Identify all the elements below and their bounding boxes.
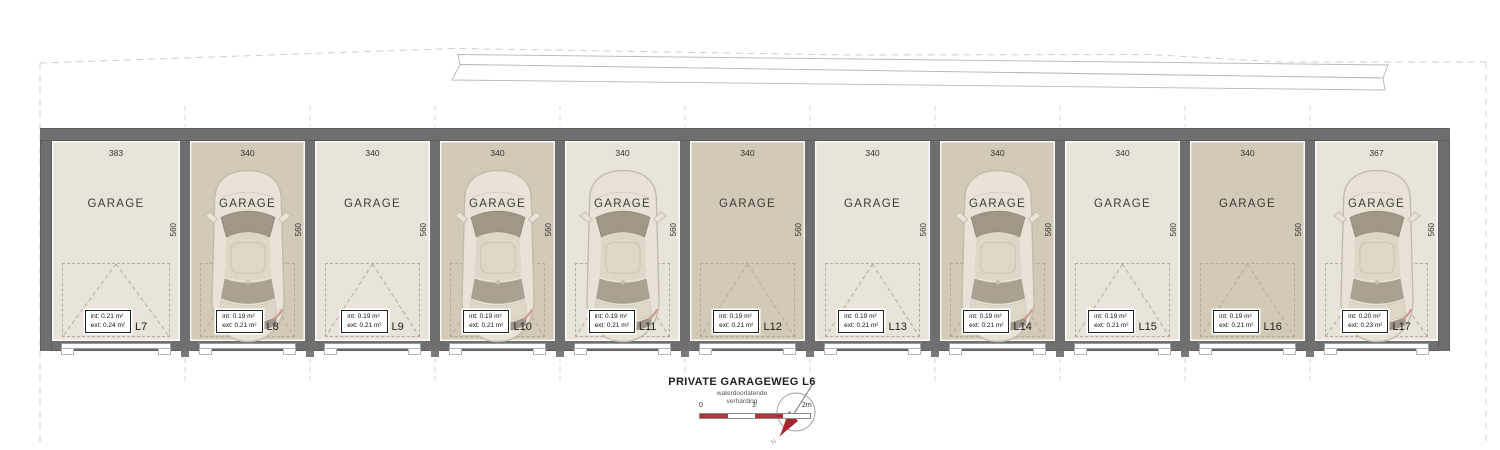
area-ext: ext: 0.21 m²	[969, 322, 1003, 331]
area-ext: ext: 0.21 m²	[1219, 322, 1253, 331]
garage-door	[324, 343, 421, 349]
area-int: int: 0.19 m²	[595, 313, 629, 322]
depth-dimension: 560	[1427, 223, 1436, 236]
area-int: int: 0.19 m²	[222, 313, 256, 322]
depth-dimension: 560	[669, 223, 678, 236]
door-sill-left	[449, 348, 462, 355]
garage-floor: 340 GARAGE 560 int: 0.19 m² ext: 0.21 m²…	[440, 141, 555, 341]
garage-floor: 340 GARAGE 560 int: 0.19 m² ext: 0.21 m²…	[815, 141, 930, 341]
garage-door	[61, 343, 171, 349]
garage-unit: 340 GARAGE 560 int: 0.19 m² ext: 0.21 m²…	[440, 141, 555, 351]
width-dimension: 340	[440, 148, 555, 158]
unit-id-label: L9	[392, 322, 404, 333]
depth-dimension: 560	[419, 223, 428, 236]
door-sill-left	[824, 348, 837, 355]
garage-floor: 367 GARAGE 560 int: 0.20 m² ext: 0.23 m²…	[1315, 141, 1438, 341]
garage-room-label: GARAGE	[690, 198, 805, 210]
width-dimension: 340	[565, 148, 680, 158]
garage-door	[699, 343, 796, 349]
area-int: int: 0.19 m²	[844, 313, 878, 322]
end-wall-left	[40, 141, 52, 351]
party-wall	[680, 141, 690, 351]
door-sill-left	[1324, 348, 1337, 355]
front-wall	[690, 341, 805, 351]
unit-id-label: L15	[1138, 322, 1156, 333]
party-wall	[1180, 141, 1190, 351]
width-dimension: 340	[690, 148, 805, 158]
garage-floor: 340 GARAGE 560 int: 0.19 m² ext: 0.21 m²…	[690, 141, 805, 341]
depth-dimension: 560	[919, 223, 928, 236]
area-info-box: int: 0.19 m² ext: 0.21 m²	[1213, 310, 1259, 333]
area-int: int: 0.19 m²	[969, 313, 1003, 322]
width-dimension: 340	[815, 148, 930, 158]
area-ext: ext: 0.21 m²	[469, 322, 503, 331]
width-dimension: 367	[1315, 148, 1438, 158]
garage-room-label: GARAGE	[940, 198, 1055, 210]
area-ext: ext: 0.23 m²	[1348, 322, 1382, 331]
garage-unit: 340 GARAGE 560 int: 0.19 m² ext: 0.21 m²…	[190, 141, 305, 351]
end-wall-right	[1438, 141, 1450, 351]
garage-unit: 340 GARAGE 560 int: 0.19 m² ext: 0.21 m²…	[940, 141, 1055, 351]
garage-unit: 340 GARAGE 560 int: 0.19 m² ext: 0.21 m²…	[1065, 141, 1180, 351]
area-info-box: int: 0.20 m² ext: 0.23 m²	[1342, 310, 1388, 333]
party-wall	[930, 141, 940, 351]
area-ext: ext: 0.24 m²	[91, 322, 125, 331]
door-sill-right	[158, 348, 171, 355]
garage-unit: 340 GARAGE 560 int: 0.19 m² ext: 0.21 m²…	[315, 141, 430, 351]
area-info-box: int: 0.19 m² ext: 0.21 m²	[341, 310, 387, 333]
front-wall	[1065, 341, 1180, 351]
door-sill-right	[783, 348, 796, 355]
depth-dimension: 560	[794, 223, 803, 236]
party-wall	[555, 141, 565, 351]
party-wall	[305, 141, 315, 351]
garage-floor: 340 GARAGE 560 int: 0.19 m² ext: 0.21 m²…	[565, 141, 680, 341]
garage-floor: 340 GARAGE 560 int: 0.19 m² ext: 0.21 m²…	[940, 141, 1055, 341]
garage-unit: 340 GARAGE 560 int: 0.19 m² ext: 0.21 m²…	[815, 141, 930, 351]
garage-door	[824, 343, 921, 349]
area-info-box: int: 0.21 m² ext: 0.24 m²	[85, 310, 131, 333]
area-ext: ext: 0.21 m²	[222, 322, 256, 331]
garage-room-label: GARAGE	[440, 198, 555, 210]
area-int: int: 0.19 m²	[1094, 313, 1128, 322]
unit-id-label: L13	[888, 322, 906, 333]
area-int: int: 0.21 m²	[91, 313, 125, 322]
front-wall	[1190, 341, 1305, 351]
door-sill-right	[1158, 348, 1171, 355]
door-sill-left	[199, 348, 212, 355]
door-sill-right	[408, 348, 421, 355]
depth-dimension: 560	[1294, 223, 1303, 236]
unit-id-label: L17	[1392, 322, 1410, 333]
garage-floor: 340 GARAGE 560 int: 0.19 m² ext: 0.21 m²…	[315, 141, 430, 341]
door-sill-right	[1033, 348, 1046, 355]
door-sill-left	[1199, 348, 1212, 355]
garage-door	[1199, 343, 1296, 349]
scale-label-2: 2m	[802, 402, 812, 409]
front-wall	[52, 341, 180, 351]
area-ext: ext: 0.21 m²	[595, 322, 629, 331]
area-int: int: 0.19 m²	[1219, 313, 1253, 322]
scale-bar: 0 1 2m	[699, 402, 813, 419]
width-dimension: 340	[1065, 148, 1180, 158]
depth-dimension: 560	[1044, 223, 1053, 236]
unit-id-label: L8	[267, 322, 279, 333]
garage-door	[1074, 343, 1171, 349]
party-wall	[1305, 141, 1315, 351]
area-int: int: 0.19 m²	[347, 313, 381, 322]
area-info-box: int: 0.19 m² ext: 0.21 m²	[838, 310, 884, 333]
party-wall	[180, 141, 190, 351]
depth-dimension: 560	[1169, 223, 1178, 236]
door-sill-right	[533, 348, 546, 355]
area-info-box: int: 0.19 m² ext: 0.21 m²	[713, 310, 759, 333]
unit-id-label: L10	[513, 322, 531, 333]
unit-id-label: L14	[1013, 322, 1031, 333]
garage-room-label: GARAGE	[52, 198, 180, 210]
garage-room-label: GARAGE	[1065, 198, 1180, 210]
door-sill-left	[324, 348, 337, 355]
area-ext: ext: 0.21 m²	[347, 322, 381, 331]
garage-unit: 367 GARAGE 560 int: 0.20 m² ext: 0.23 m²…	[1315, 141, 1438, 351]
unit-id-label: L7	[135, 322, 147, 333]
garage-floor: 340 GARAGE 560 int: 0.19 m² ext: 0.21 m²…	[190, 141, 305, 341]
unit-id-label: L12	[763, 322, 781, 333]
garage-room-label: GARAGE	[1315, 198, 1438, 210]
area-info-box: int: 0.19 m² ext: 0.21 m²	[1088, 310, 1134, 333]
width-dimension: 340	[1190, 148, 1305, 158]
garage-room-label: GARAGE	[315, 198, 430, 210]
area-int: int: 0.19 m²	[469, 313, 503, 322]
depth-dimension: 560	[294, 223, 303, 236]
garage-floor: 340 GARAGE 560 int: 0.19 m² ext: 0.21 m²…	[1190, 141, 1305, 341]
party-wall	[805, 141, 815, 351]
front-wall	[815, 341, 930, 351]
garage-floor: 383 GARAGE 560 int: 0.21 m² ext: 0.24 m²…	[52, 141, 180, 341]
depth-dimension: 560	[169, 223, 178, 236]
door-sill-left	[61, 348, 74, 355]
front-wall	[315, 341, 430, 351]
garage-room-label: GARAGE	[190, 198, 305, 210]
door-sill-left	[574, 348, 587, 355]
scale-bar-segments	[699, 413, 811, 419]
door-sill-left	[1074, 348, 1087, 355]
depth-dimension: 560	[544, 223, 553, 236]
door-sill-right	[1416, 348, 1429, 355]
width-dimension: 383	[52, 148, 180, 158]
party-wall	[430, 141, 440, 351]
area-int: int: 0.20 m²	[1348, 313, 1382, 322]
garage-unit: 340 GARAGE 560 int: 0.19 m² ext: 0.21 m²…	[565, 141, 680, 351]
garage-building: 383 GARAGE 560 int: 0.21 m² ext: 0.24 m²…	[40, 128, 1450, 351]
garage-room-label: GARAGE	[565, 198, 680, 210]
unit-id-label: L11	[639, 322, 657, 333]
width-dimension: 340	[315, 148, 430, 158]
garage-room-label: GARAGE	[815, 198, 930, 210]
door-sill-left	[949, 348, 962, 355]
scale-label-1: 1	[752, 402, 756, 409]
garage-unit: 383 GARAGE 560 int: 0.21 m² ext: 0.24 m²…	[52, 141, 180, 351]
area-ext: ext: 0.21 m²	[844, 322, 878, 331]
north-letter: N	[770, 437, 779, 446]
door-sill-right	[283, 348, 296, 355]
door-sill-right	[658, 348, 671, 355]
rear-wall	[40, 128, 1450, 141]
unit-id-label: L16	[1263, 322, 1281, 333]
garage-floor: 340 GARAGE 560 int: 0.19 m² ext: 0.21 m²…	[1065, 141, 1180, 341]
road-title: PRIVATE GARAGEWEG L6	[642, 376, 842, 388]
area-info-box: int: 0.19 m² ext: 0.21 m²	[963, 310, 1009, 333]
garage-unit: 340 GARAGE 560 int: 0.19 m² ext: 0.21 m²…	[1190, 141, 1305, 351]
door-sill-right	[908, 348, 921, 355]
area-int: int: 0.19 m²	[719, 313, 753, 322]
door-sill-right	[1283, 348, 1296, 355]
width-dimension: 340	[190, 148, 305, 158]
area-info-box: int: 0.19 m² ext: 0.21 m²	[216, 310, 262, 333]
roadside-strip	[452, 55, 1388, 91]
scale-label-0: 0	[699, 402, 703, 409]
garage-room-label: GARAGE	[1190, 198, 1305, 210]
width-dimension: 340	[940, 148, 1055, 158]
area-info-box: int: 0.19 m² ext: 0.21 m²	[589, 310, 635, 333]
party-wall	[1055, 141, 1065, 351]
area-info-box: int: 0.19 m² ext: 0.21 m²	[463, 310, 509, 333]
area-ext: ext: 0.21 m²	[1094, 322, 1128, 331]
door-sill-left	[699, 348, 712, 355]
area-ext: ext: 0.21 m²	[719, 322, 753, 331]
garage-unit: 340 GARAGE 560 int: 0.19 m² ext: 0.21 m²…	[690, 141, 805, 351]
